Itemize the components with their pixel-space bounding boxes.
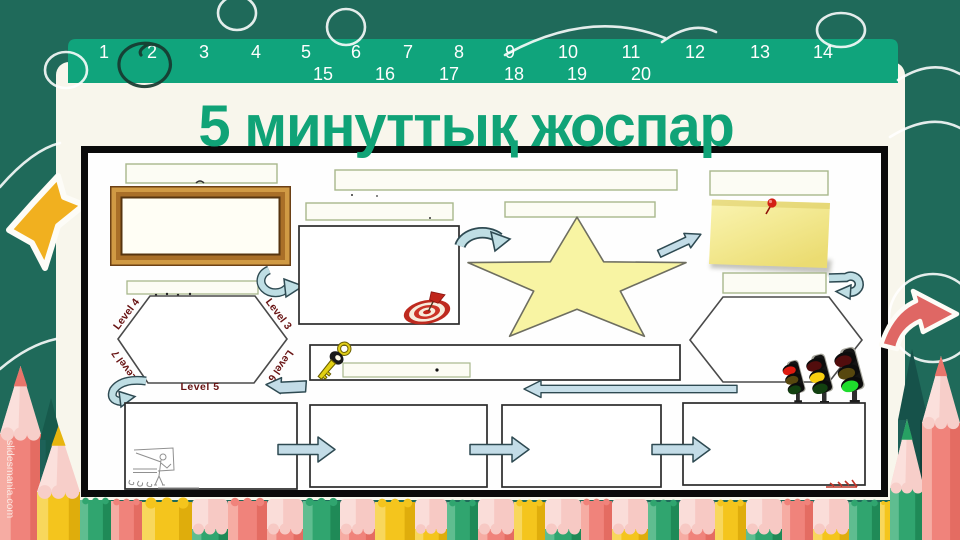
svg-text:slidesmania.com: slidesmania.com [4,440,16,518]
svg-text:16: 16 [375,64,395,84]
svg-text:19: 19 [567,64,587,84]
svg-text:13: 13 [750,42,770,62]
svg-text:17: 17 [439,64,459,84]
svg-text:5: 5 [301,42,311,62]
svg-text:10: 10 [558,42,578,62]
svg-text:1: 1 [99,42,109,62]
svg-text:11: 11 [622,42,641,62]
svg-text:7: 7 [403,42,413,62]
svg-text:15: 15 [313,64,333,84]
svg-text:3: 3 [199,42,209,62]
svg-text:Level 5: Level 5 [180,381,219,393]
svg-text:5 минуттық жоспар: 5 минуттық жоспар [198,94,733,159]
svg-text:12: 12 [685,42,705,62]
svg-text:4: 4 [251,42,261,62]
svg-text:8: 8 [454,42,464,62]
svg-text:18: 18 [504,64,524,84]
svg-text:20: 20 [631,64,651,84]
